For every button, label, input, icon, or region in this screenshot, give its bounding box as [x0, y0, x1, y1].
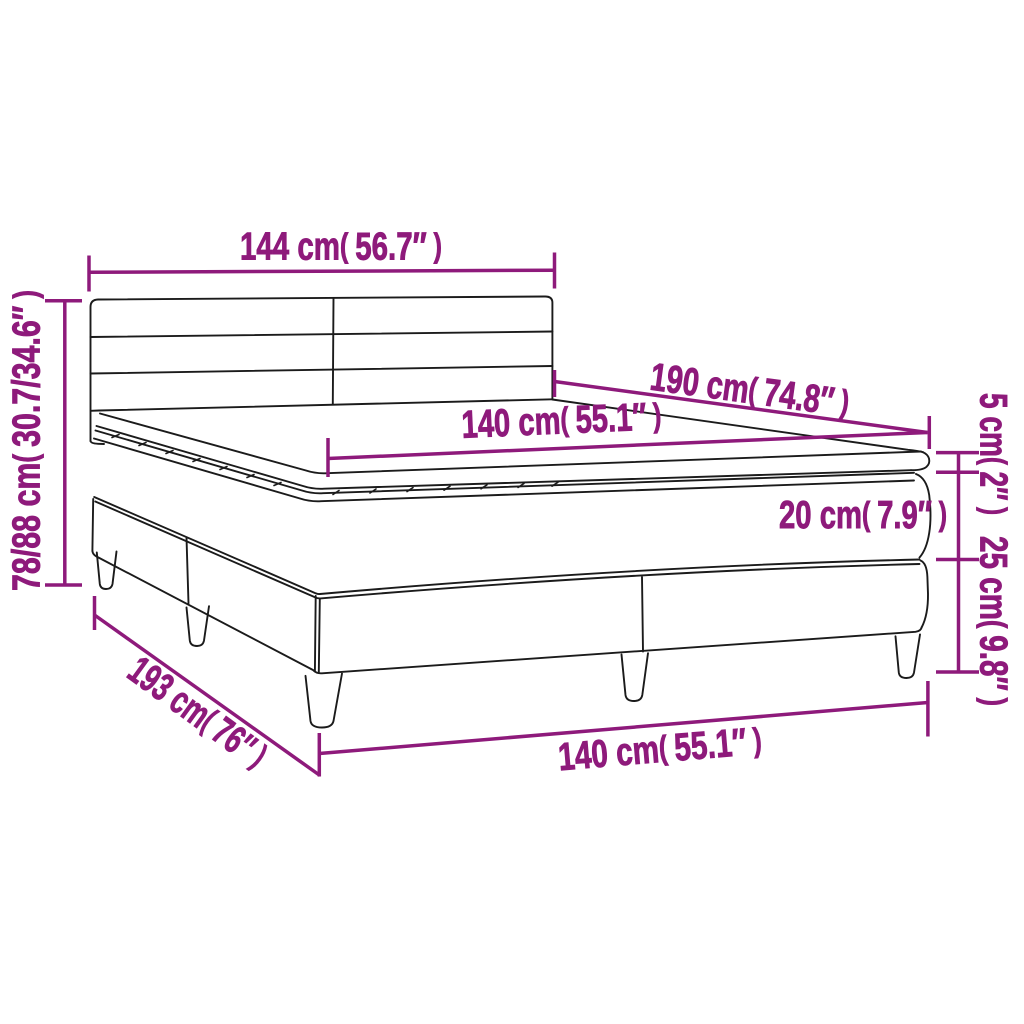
svg-text:20 cm( 7.9″ ): 20 cm( 7.9″ ) — [779, 494, 947, 537]
svg-text:78/88 cm( 30.7/34.6″ ): 78/88 cm( 30.7/34.6″ ) — [6, 290, 49, 591]
svg-text:25 cm( 9.8″ ): 25 cm( 9.8″ ) — [972, 536, 1015, 706]
svg-text:5 cm( 2″ ): 5 cm( 2″ ) — [972, 393, 1015, 515]
svg-text:144 cm( 56.7″ ): 144 cm( 56.7″ ) — [240, 226, 442, 269]
